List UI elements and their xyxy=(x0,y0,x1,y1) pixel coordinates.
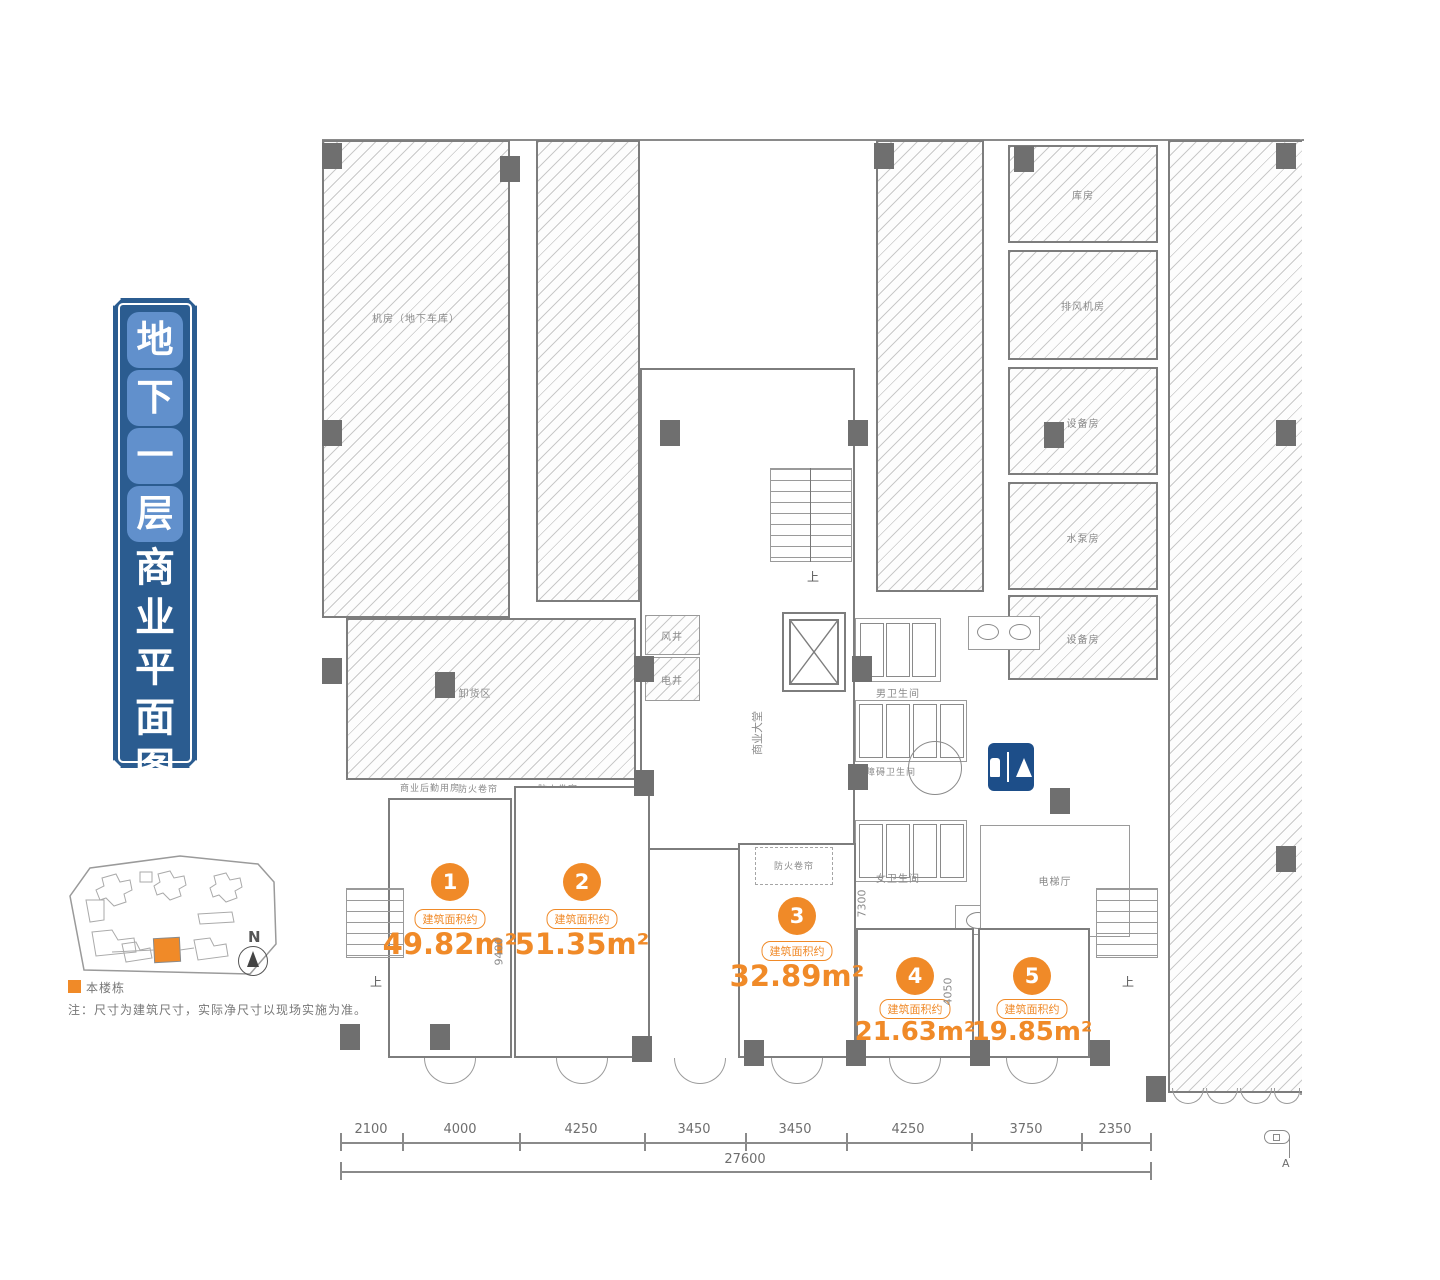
legend-swatch xyxy=(68,980,81,993)
unit-number-badge: 1 xyxy=(431,863,469,901)
room-label: 风井 xyxy=(661,628,683,643)
unit-number-badge: 3 xyxy=(778,897,816,935)
room-label: 排风机房 xyxy=(1061,298,1105,313)
dimension-tick xyxy=(519,1133,521,1151)
entrance-door-arc xyxy=(1006,1058,1058,1084)
shutter-label: 防火卷帘 xyxy=(774,859,814,872)
section-marker-icon xyxy=(1264,1130,1290,1144)
room-label: 男卫生间 xyxy=(876,685,920,700)
room-label: 电梯厅 xyxy=(1039,873,1072,888)
scallop-arc xyxy=(1274,1088,1300,1104)
unit-area-pill: 建筑面积约 xyxy=(415,909,486,929)
plaque-notch xyxy=(189,760,203,774)
room-label: 机房（地下车库） xyxy=(372,310,460,325)
wc-stall xyxy=(886,704,910,758)
title-char: 一 xyxy=(127,428,183,484)
column xyxy=(430,1024,450,1050)
shutter-label: 防火卷帘 xyxy=(458,782,498,795)
column xyxy=(340,1024,360,1050)
dimension-value: 2100 xyxy=(354,1122,387,1137)
stair-up-label: 上 xyxy=(370,973,382,990)
accessible-wc-icon xyxy=(908,741,962,795)
unit-area-pill: 建筑面积约 xyxy=(880,999,951,1019)
title-char: 面 xyxy=(127,694,183,742)
column xyxy=(970,1040,990,1066)
unit-number-badge: 2 xyxy=(563,863,601,901)
elevator-shaft xyxy=(782,612,846,692)
unit-area-pill: 建筑面积约 xyxy=(547,909,618,929)
entrance-door-arc xyxy=(771,1058,823,1084)
column xyxy=(500,156,520,182)
section-marker-label: A xyxy=(1282,1157,1290,1170)
column xyxy=(1276,846,1296,872)
floor-plan: 机房（地下车库） 卸货区 库房 排风机房 设备房 水泵房 设备房 商业大堂 上 … xyxy=(320,125,1320,1225)
column xyxy=(1090,1040,1110,1066)
dimension-value: 2350 xyxy=(1098,1122,1131,1137)
dimension-value: 4250 xyxy=(891,1122,924,1137)
room-label: 卸货区 xyxy=(459,685,492,700)
dimension-tick xyxy=(1150,1162,1152,1180)
north-label: N xyxy=(248,928,261,946)
dimension-tick xyxy=(846,1133,848,1151)
wc-stall xyxy=(912,623,936,677)
hatched-zone xyxy=(536,140,640,602)
room-label: 女卫生间 xyxy=(876,870,920,885)
scallop-arc xyxy=(1172,1088,1204,1104)
v-dimension: 7300 xyxy=(856,890,869,918)
column xyxy=(322,658,342,684)
column xyxy=(848,764,868,790)
dimension-tick xyxy=(1081,1133,1083,1151)
dimension-value: 3450 xyxy=(778,1122,811,1137)
column xyxy=(660,420,680,446)
dimension-tick xyxy=(402,1133,404,1151)
stair-up-label: 上 xyxy=(807,568,819,585)
site-key-map xyxy=(62,852,312,982)
column xyxy=(634,770,654,796)
title-char: 层 xyxy=(127,486,183,542)
column xyxy=(846,1040,866,1066)
hatched-corridor xyxy=(1168,140,1302,1093)
plaque-notch xyxy=(107,760,121,774)
wc-stall xyxy=(859,704,883,758)
column xyxy=(1050,788,1070,814)
wc-sinks xyxy=(968,616,1040,650)
room-machine xyxy=(322,140,510,618)
column xyxy=(435,672,455,698)
room-label: 库房 xyxy=(1072,187,1094,202)
dimension-tick xyxy=(971,1133,973,1151)
column xyxy=(852,656,872,682)
title-char: 地 xyxy=(127,312,183,368)
unit-number-badge: 4 xyxy=(896,957,934,995)
stair xyxy=(770,468,852,562)
dimension-tick xyxy=(644,1133,646,1151)
north-compass-icon xyxy=(238,946,268,976)
title-char: 图 xyxy=(127,744,183,792)
scallop-arc xyxy=(1206,1088,1238,1104)
dimension-tick xyxy=(1150,1133,1152,1151)
v-dimension: 4050 xyxy=(942,978,955,1006)
wc-stall xyxy=(886,623,910,677)
title-char: 下 xyxy=(127,370,183,426)
dimension-value: 3750 xyxy=(1009,1122,1042,1137)
dimension-value: 4000 xyxy=(443,1122,476,1137)
room-label: 电井 xyxy=(661,672,683,687)
column xyxy=(1276,143,1296,169)
column xyxy=(1276,420,1296,446)
stair-up-label: 上 xyxy=(1122,973,1134,990)
unit-area-value: 21.63m² xyxy=(855,1017,976,1047)
dimension-value: 4250 xyxy=(564,1122,597,1137)
restroom-sign-icon xyxy=(988,743,1034,791)
floor-title-plaque: 地 下 一 层 商 业 平 面 图 xyxy=(113,298,197,768)
hatched-zone xyxy=(876,140,984,592)
dimension-total-line xyxy=(340,1171,1150,1173)
dimension-tick xyxy=(340,1162,342,1180)
section-marker-stem xyxy=(1289,1136,1290,1158)
room-label: 商业大堂 xyxy=(749,711,765,755)
male-figure-icon xyxy=(990,758,1000,777)
dimension-tick xyxy=(340,1133,342,1151)
unit-area-value: 32.89m² xyxy=(730,959,865,993)
dimension-total: 27600 xyxy=(718,1152,771,1167)
dimension-value: 3450 xyxy=(677,1122,710,1137)
plaque-notch xyxy=(189,292,203,306)
v-dimension: 9400 xyxy=(493,938,506,966)
unit-number-badge: 5 xyxy=(1013,957,1051,995)
elevator-x-icon xyxy=(784,614,844,690)
unit-area-pill: 建筑面积约 xyxy=(997,999,1068,1019)
stair xyxy=(1096,888,1158,958)
divider xyxy=(1007,752,1009,782)
column xyxy=(874,143,894,169)
sink xyxy=(1009,624,1031,640)
wc-stall xyxy=(940,824,964,878)
column xyxy=(848,420,868,446)
room-label: 水泵房 xyxy=(1067,530,1100,545)
plaque-notch xyxy=(107,292,121,306)
column xyxy=(322,143,342,169)
compass-needle xyxy=(247,951,259,967)
room-label: 设备房 xyxy=(1067,415,1100,430)
entrance-door-arc xyxy=(556,1058,608,1084)
column xyxy=(632,1036,652,1062)
entrance-door-arc xyxy=(674,1058,726,1084)
highlighted-building xyxy=(153,937,180,962)
sink xyxy=(977,624,999,640)
site-plan-drawing xyxy=(62,852,312,982)
entrance-door-arc xyxy=(889,1058,941,1084)
room-label: 设备房 xyxy=(1067,631,1100,646)
column xyxy=(1014,146,1034,172)
title-char: 平 xyxy=(127,644,183,692)
unit-area-value: 51.35m² xyxy=(515,927,650,961)
dimension-tick xyxy=(745,1133,747,1151)
column xyxy=(744,1040,764,1066)
scallop-arc xyxy=(1240,1088,1272,1104)
section-marker-square xyxy=(1273,1134,1280,1141)
stair-rail xyxy=(810,468,811,562)
column xyxy=(1146,1076,1166,1102)
legend-label: 本楼栋 xyxy=(86,979,125,996)
title-char: 商 xyxy=(127,544,183,592)
column xyxy=(322,420,342,446)
unit-area-pill: 建筑面积约 xyxy=(762,941,833,961)
column xyxy=(634,656,654,682)
female-figure-icon xyxy=(1016,758,1032,777)
entrance-door-arc xyxy=(424,1058,476,1084)
column xyxy=(1044,422,1064,448)
title-char: 业 xyxy=(127,594,183,642)
room-label: 商业后勤用房 xyxy=(400,781,460,794)
